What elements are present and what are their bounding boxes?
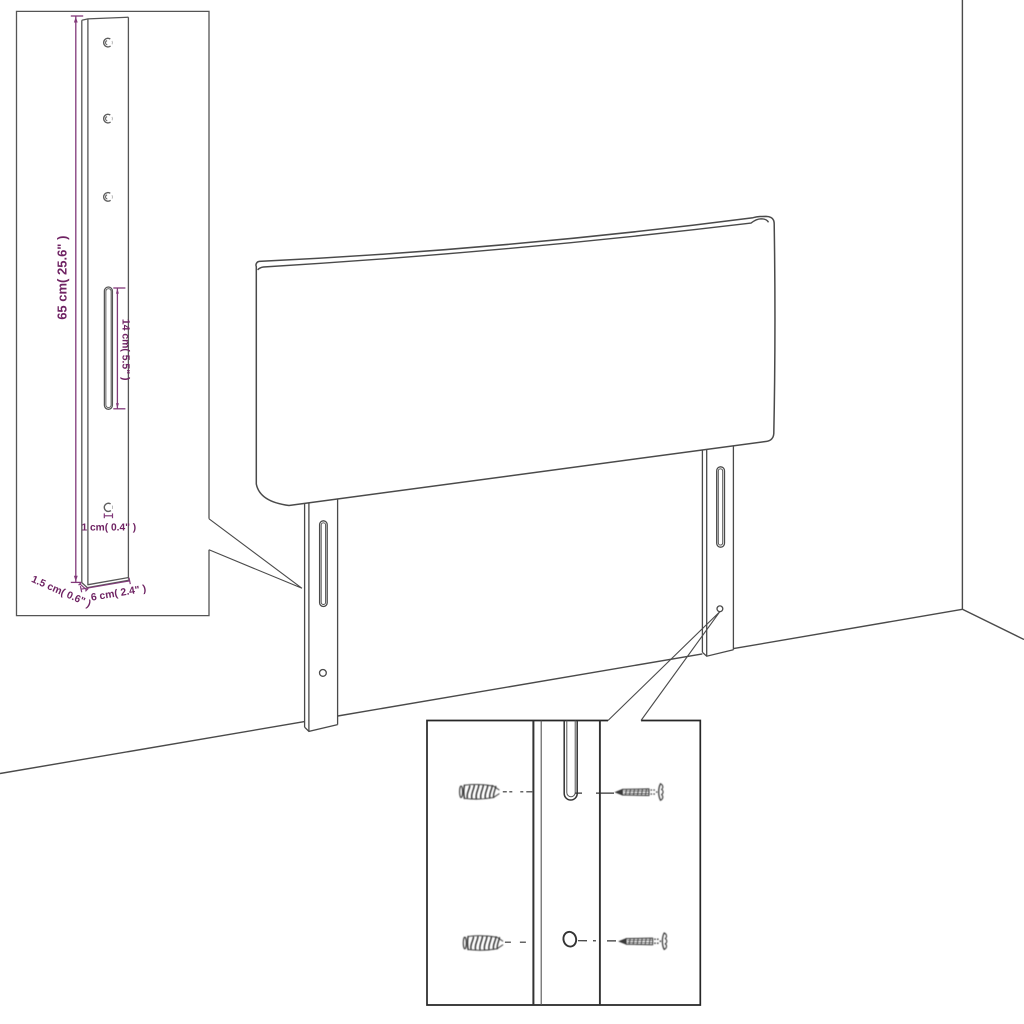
svg-text:1.5 cm( 0.6" ): 1.5 cm( 0.6" ) [30,574,93,610]
svg-text:14 cm( 5.5" ): 14 cm( 5.5" ) [120,319,131,381]
svg-text:65 cm( 25.6" ): 65 cm( 25.6" ) [55,236,70,320]
svg-text:1 cm( 0.4" ): 1 cm( 0.4" ) [82,522,137,533]
